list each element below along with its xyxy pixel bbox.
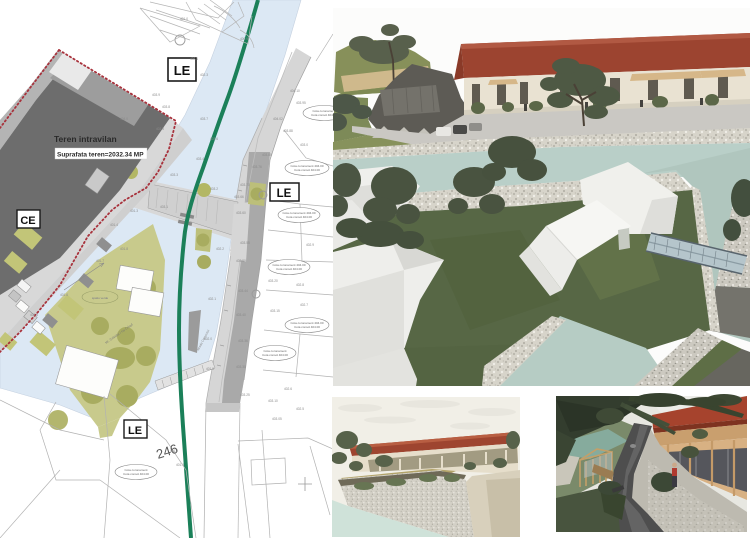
svg-text:403.0: 403.0 bbox=[300, 143, 308, 147]
svg-text:401.4: 401.4 bbox=[110, 223, 118, 227]
svg-text:401.0: 401.0 bbox=[180, 17, 188, 21]
svg-text:401.2: 401.2 bbox=[170, 449, 178, 453]
svg-text:401.7: 401.7 bbox=[96, 259, 104, 263]
svg-text:403.2: 403.2 bbox=[210, 187, 218, 191]
svg-text:Cota consol 404.00: Cota consol 404.00 bbox=[294, 168, 320, 172]
svg-text:400.9: 400.9 bbox=[240, 37, 248, 41]
svg-text:402.5: 402.5 bbox=[296, 407, 304, 411]
svg-text:403.88: 403.88 bbox=[283, 129, 293, 133]
svg-text:Cota consol 404.00: Cota consol 404.00 bbox=[123, 472, 149, 476]
svg-text:CE: CE bbox=[20, 215, 35, 227]
svg-text:401.8: 401.8 bbox=[120, 247, 128, 251]
svg-text:402.1: 402.1 bbox=[208, 297, 216, 301]
svg-text:404.0: 404.0 bbox=[120, 117, 128, 121]
svg-text:403.70: 403.70 bbox=[240, 183, 250, 187]
svg-text:403.76: 403.76 bbox=[252, 165, 262, 169]
svg-text:401.3: 401.3 bbox=[130, 209, 138, 213]
svg-text:403.30: 403.30 bbox=[236, 365, 246, 369]
svg-text:403.15: 403.15 bbox=[270, 309, 280, 313]
svg-text:403.60: 403.60 bbox=[236, 211, 246, 215]
svg-text:401.9: 401.9 bbox=[206, 367, 214, 371]
svg-text:403.5: 403.5 bbox=[156, 127, 164, 131]
svg-text:LE: LE bbox=[174, 63, 191, 78]
svg-text:403.66: 403.66 bbox=[234, 195, 244, 199]
svg-text:Cota consol 404.00: Cota consol 404.00 bbox=[276, 267, 302, 271]
svg-text:403.40: 403.40 bbox=[236, 313, 246, 317]
svg-text:403.44: 403.44 bbox=[238, 289, 248, 293]
svg-text:403.6: 403.6 bbox=[210, 137, 218, 141]
svg-text:402.6: 402.6 bbox=[284, 387, 292, 391]
svg-text:402.3: 402.3 bbox=[200, 73, 208, 77]
svg-text:LE: LE bbox=[277, 188, 292, 200]
svg-text:402.8: 402.8 bbox=[296, 283, 304, 287]
svg-text:403.9: 403.9 bbox=[152, 93, 160, 97]
svg-text:Teren intravilan: Teren intravilan bbox=[54, 134, 117, 144]
svg-text:403.80: 403.80 bbox=[262, 153, 272, 157]
svg-text:403.10: 403.10 bbox=[268, 399, 278, 403]
svg-text:402.2: 402.2 bbox=[216, 247, 224, 251]
svg-text:Cota consol 404.00: Cota consol 404.00 bbox=[294, 325, 320, 329]
svg-text:401.1: 401.1 bbox=[176, 463, 184, 467]
svg-text:403.7: 403.7 bbox=[200, 117, 208, 121]
svg-text:402.9: 402.9 bbox=[306, 243, 314, 247]
svg-text:403.50: 403.50 bbox=[236, 259, 246, 263]
svg-text:403.8: 403.8 bbox=[162, 105, 170, 109]
svg-text:402.4: 402.4 bbox=[190, 57, 198, 61]
svg-text:spatiu verde: spatiu verde bbox=[92, 296, 109, 300]
svg-text:403.95: 403.95 bbox=[296, 101, 306, 105]
svg-text:403.25: 403.25 bbox=[240, 393, 250, 397]
svg-text:403.3: 403.3 bbox=[170, 173, 178, 177]
svg-text:401.5: 401.5 bbox=[30, 313, 38, 317]
svg-text:LE: LE bbox=[128, 425, 142, 437]
svg-text:404.02: 404.02 bbox=[273, 117, 283, 121]
svg-text:403.36: 403.36 bbox=[238, 339, 248, 343]
svg-text:Cota consol 404.00: Cota consol 404.00 bbox=[262, 353, 288, 357]
svg-text:Suprafata teren=2032.34 MP: Suprafata teren=2032.34 MP bbox=[57, 152, 144, 159]
svg-text:403.05: 403.05 bbox=[272, 417, 282, 421]
svg-text:403.4: 403.4 bbox=[196, 157, 204, 161]
svg-text:403.20: 403.20 bbox=[268, 279, 278, 283]
svg-text:Cota consol 404.00: Cota consol 404.00 bbox=[286, 215, 312, 219]
svg-text:403.1: 403.1 bbox=[160, 205, 168, 209]
svg-text:403.55: 403.55 bbox=[240, 241, 250, 245]
svg-text:401.6: 401.6 bbox=[60, 293, 68, 297]
svg-text:402.7: 402.7 bbox=[300, 303, 308, 307]
svg-text:404.10: 404.10 bbox=[290, 89, 300, 93]
